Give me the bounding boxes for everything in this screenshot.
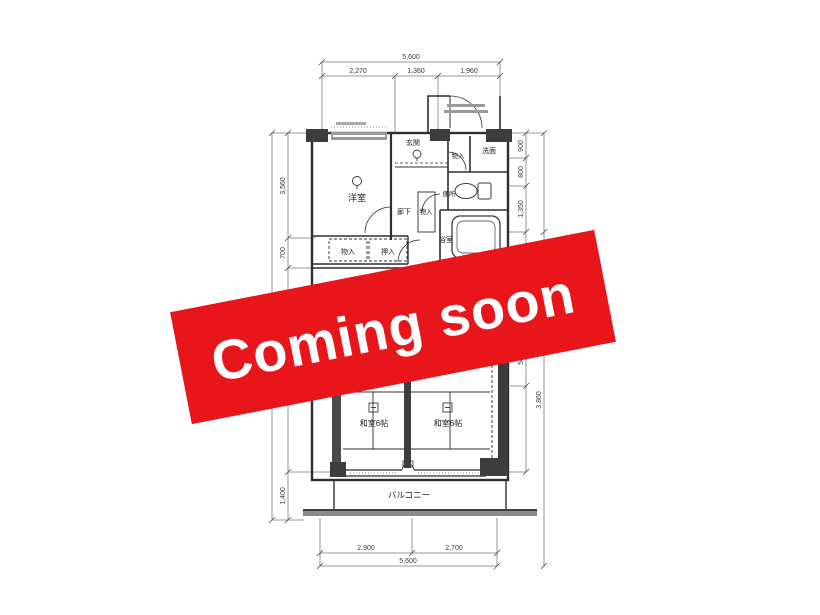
- dim-bottom-seg-2: 2,700: [445, 545, 463, 552]
- dim-top-seg-2: 1,360: [407, 68, 425, 75]
- dim-right-seg-1: 900: [518, 140, 525, 152]
- tatami-light-left-icon: [369, 403, 378, 412]
- dim-top-seg-1: 2,270: [349, 68, 367, 75]
- wall-block-top-mid: [430, 129, 450, 141]
- room-label-closet-b: 押入: [381, 247, 395, 256]
- room-label-entrance-storage: 物入: [452, 151, 466, 160]
- room-label-tatami-right: 和室6帖: [434, 418, 462, 428]
- wall-block-top-left: [306, 129, 328, 142]
- wall-block-bottom-right: [480, 458, 508, 476]
- dim-left-seg-4: 1,400: [280, 487, 287, 505]
- window-band-line: [333, 135, 385, 137]
- room-label-washroom: 洗面: [482, 146, 496, 155]
- room-label-hallway: 廊下: [397, 207, 411, 216]
- dim-bottom-total: 5,600: [399, 558, 417, 565]
- room-label-tatami-left: 和室6帖: [360, 418, 388, 428]
- dim-top-seg-3: 1,960: [460, 68, 478, 75]
- western-room-door-arc: [365, 207, 391, 233]
- entrance-alcove-wall: [428, 96, 500, 133]
- wall-block-top-right: [486, 129, 512, 142]
- wall-block-bottom-left: [330, 462, 346, 477]
- dim-left-seg-1: 3,560: [280, 177, 287, 195]
- dim-top-total: 5,600: [402, 54, 420, 61]
- room-label-hall-storage: 物入: [420, 207, 434, 216]
- toilet-icon: [455, 183, 491, 199]
- dim-left-seg-2: 700: [280, 247, 287, 259]
- dim-right-seg-2: 800: [518, 166, 525, 178]
- dim-bottom-seg-1: 2,900: [357, 545, 375, 552]
- balcony-rail-top: [303, 509, 537, 511]
- room-label-balcony: バルコニー: [388, 490, 430, 500]
- tatami-light-right-icon: [443, 403, 452, 412]
- ceiling-light-icon: [353, 177, 362, 190]
- corridor-door-arc: [398, 240, 420, 262]
- dim-right-total: 3,860: [536, 391, 543, 409]
- room-label-closet-a: 物入: [341, 247, 355, 256]
- tiny-annotation-2: [444, 110, 488, 113]
- room-label-entrance: 玄関: [406, 138, 420, 147]
- tiny-annotation-1: [447, 104, 485, 107]
- entrance-light-icon: [413, 150, 421, 161]
- sanitary-walls: [312, 133, 508, 268]
- room-label-toilet: 便所: [443, 189, 457, 198]
- tiny-annotation-3: [336, 122, 366, 125]
- window-wall: [346, 470, 486, 476]
- floor-plan-page: 5,600 2,270 1,360 1,960 2,900 2,700 5,60…: [0, 0, 820, 615]
- dim-right-seg-3: 1,350: [518, 200, 525, 218]
- room-label-western: 洋室: [348, 192, 366, 203]
- room-label-bath: 浴室: [439, 235, 453, 244]
